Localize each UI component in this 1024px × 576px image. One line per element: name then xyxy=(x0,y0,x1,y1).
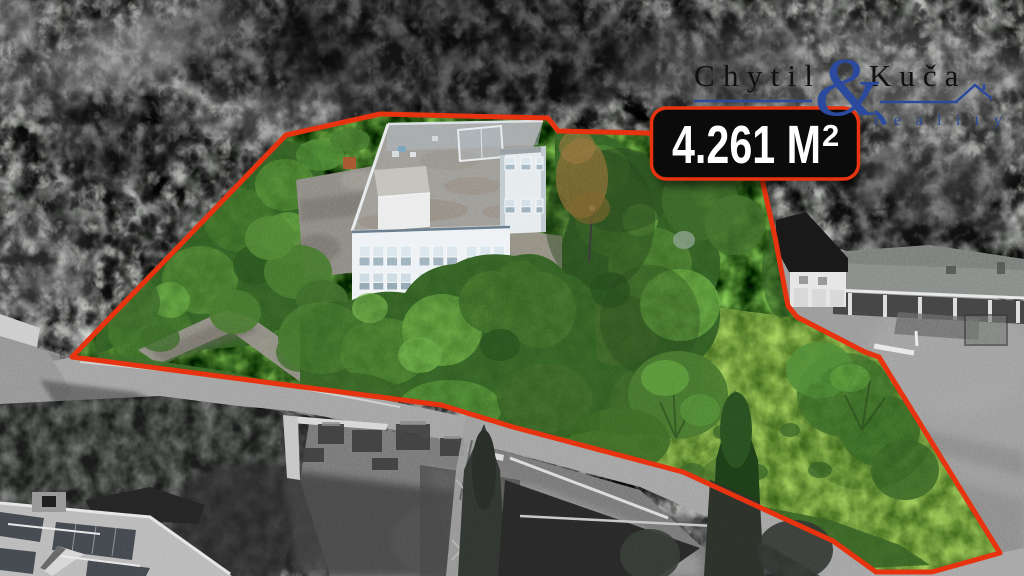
svg-text:Kuča: Kuča xyxy=(869,58,966,93)
svg-text:reality: reality xyxy=(874,112,1016,129)
svg-text:4.261 M: 4.261 M xyxy=(672,115,821,175)
svg-text:&: & xyxy=(814,41,880,134)
svg-text:Chytil: Chytil xyxy=(694,58,821,93)
